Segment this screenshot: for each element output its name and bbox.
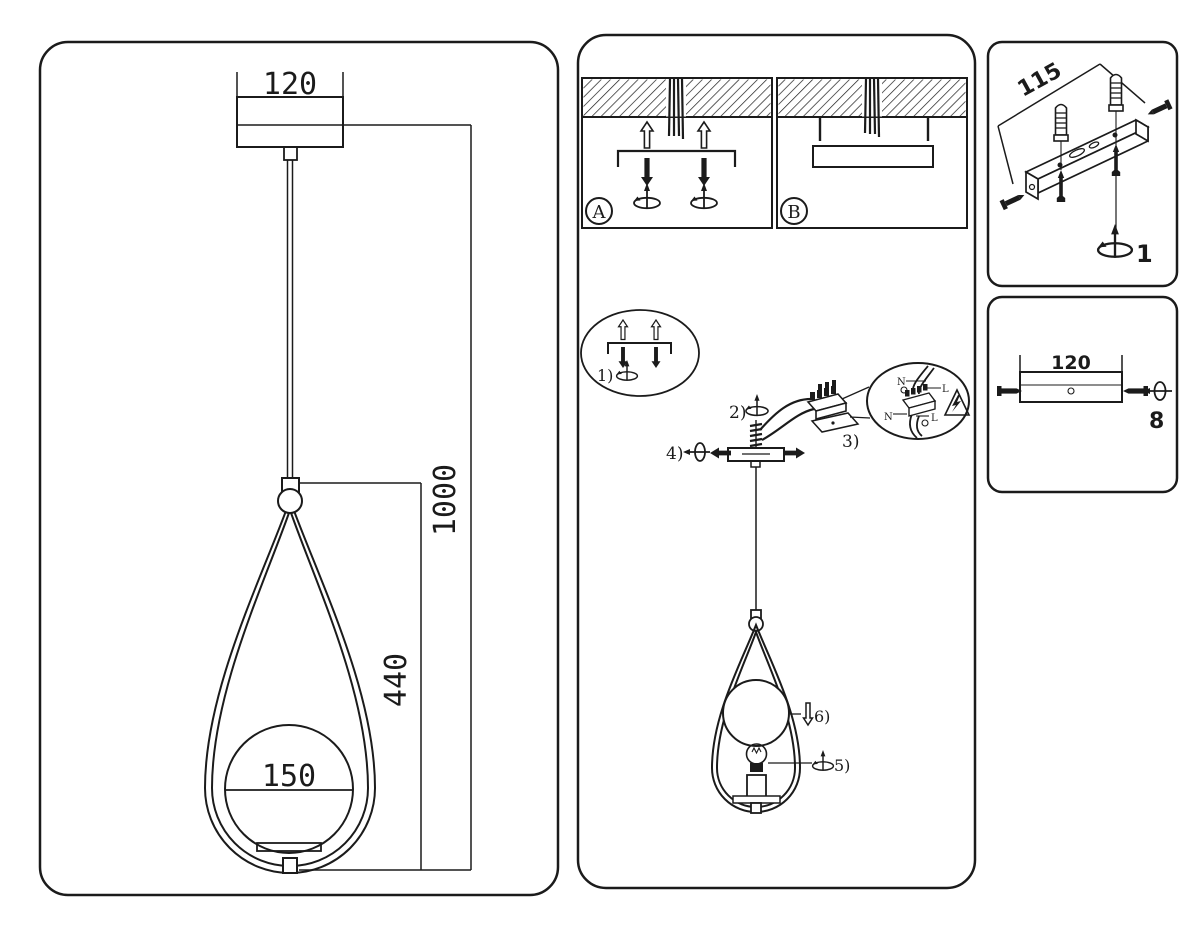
mounting-option-a: A [582, 78, 772, 228]
step-2-label: 2) [729, 403, 746, 423]
step-1-label: 1) [597, 366, 613, 385]
canopy-drawing [237, 97, 343, 160]
canopy-screw-left [997, 386, 1022, 396]
step-6-insert-globe: 6) [790, 703, 830, 726]
step-5-label: 5) [834, 756, 850, 775]
right-top-step-label: 1 [1136, 240, 1153, 268]
dim-canopy-width-label: 120 [263, 67, 317, 102]
right-bottom-panel-canopy: 120 8 [988, 297, 1177, 492]
step-3-label: 3) [842, 432, 859, 452]
dim-frame-height-label: 440 [379, 653, 414, 707]
step-1-screw-rotation: 1 [1098, 224, 1153, 268]
bulb-and-socket [733, 744, 780, 813]
threaded-nipple [750, 420, 762, 448]
dim-drop-height: 1000 [299, 125, 471, 870]
canopy-side-view [1020, 372, 1122, 402]
dim-canopy-width-2: 120 [1020, 352, 1122, 374]
supply-wires [760, 399, 814, 440]
wire-n-top-label: N [897, 377, 906, 388]
wiring-detail-balloon: N L N L [867, 363, 969, 439]
mounting-bracket-a [618, 151, 735, 167]
step-6-label: 6) [814, 707, 830, 726]
left-panel-dimension-drawing: 120 150 440 [40, 42, 558, 895]
instruction-sheet: 120 150 440 [0, 0, 1200, 933]
step-5-screw-bulb: 5) [768, 750, 850, 775]
variant-a-label: A [592, 202, 607, 223]
step-1-bubble: 1) [581, 310, 699, 396]
side-screw-right [1146, 99, 1173, 119]
dim-canopy-width-2-label: 120 [1051, 352, 1091, 374]
middle-panel-installation-steps: A B 1) [578, 35, 975, 888]
right-top-panel-bracket: 115 [988, 42, 1177, 286]
step-8-rotation: 8 [1143, 382, 1172, 434]
step-3-terminal-block: 3) [808, 380, 870, 452]
side-screw-left [1000, 191, 1027, 211]
dim-frame-height: 440 [300, 483, 421, 870]
dim-bracket-length-label: 115 [1014, 58, 1066, 102]
right-bottom-step-label: 8 [1149, 409, 1164, 434]
sheet-canvas: 120 150 440 [0, 0, 1200, 933]
bottom-finial [283, 858, 297, 873]
glass-globe [723, 680, 789, 746]
wire-n-bottom-label: N [884, 412, 893, 423]
suspension-cable [288, 160, 293, 479]
step-4-canopy: 4) [666, 443, 805, 467]
dim-globe-diameter-label: 150 [262, 759, 316, 794]
mounting-option-b: B [777, 78, 967, 228]
right-bottom-panel-border [988, 297, 1177, 492]
mounting-plate-b [813, 146, 933, 167]
dim-drop-height-label: 1000 [428, 464, 463, 536]
assembled-lamp: 6) 5) [712, 467, 850, 813]
step-4-label: 4) [666, 444, 683, 464]
variant-b-label: B [787, 202, 800, 223]
bracket-plate-isometric [1026, 120, 1148, 199]
wire-l-top-label: L [942, 384, 949, 395]
wire-l-bottom-label: L [931, 413, 938, 424]
